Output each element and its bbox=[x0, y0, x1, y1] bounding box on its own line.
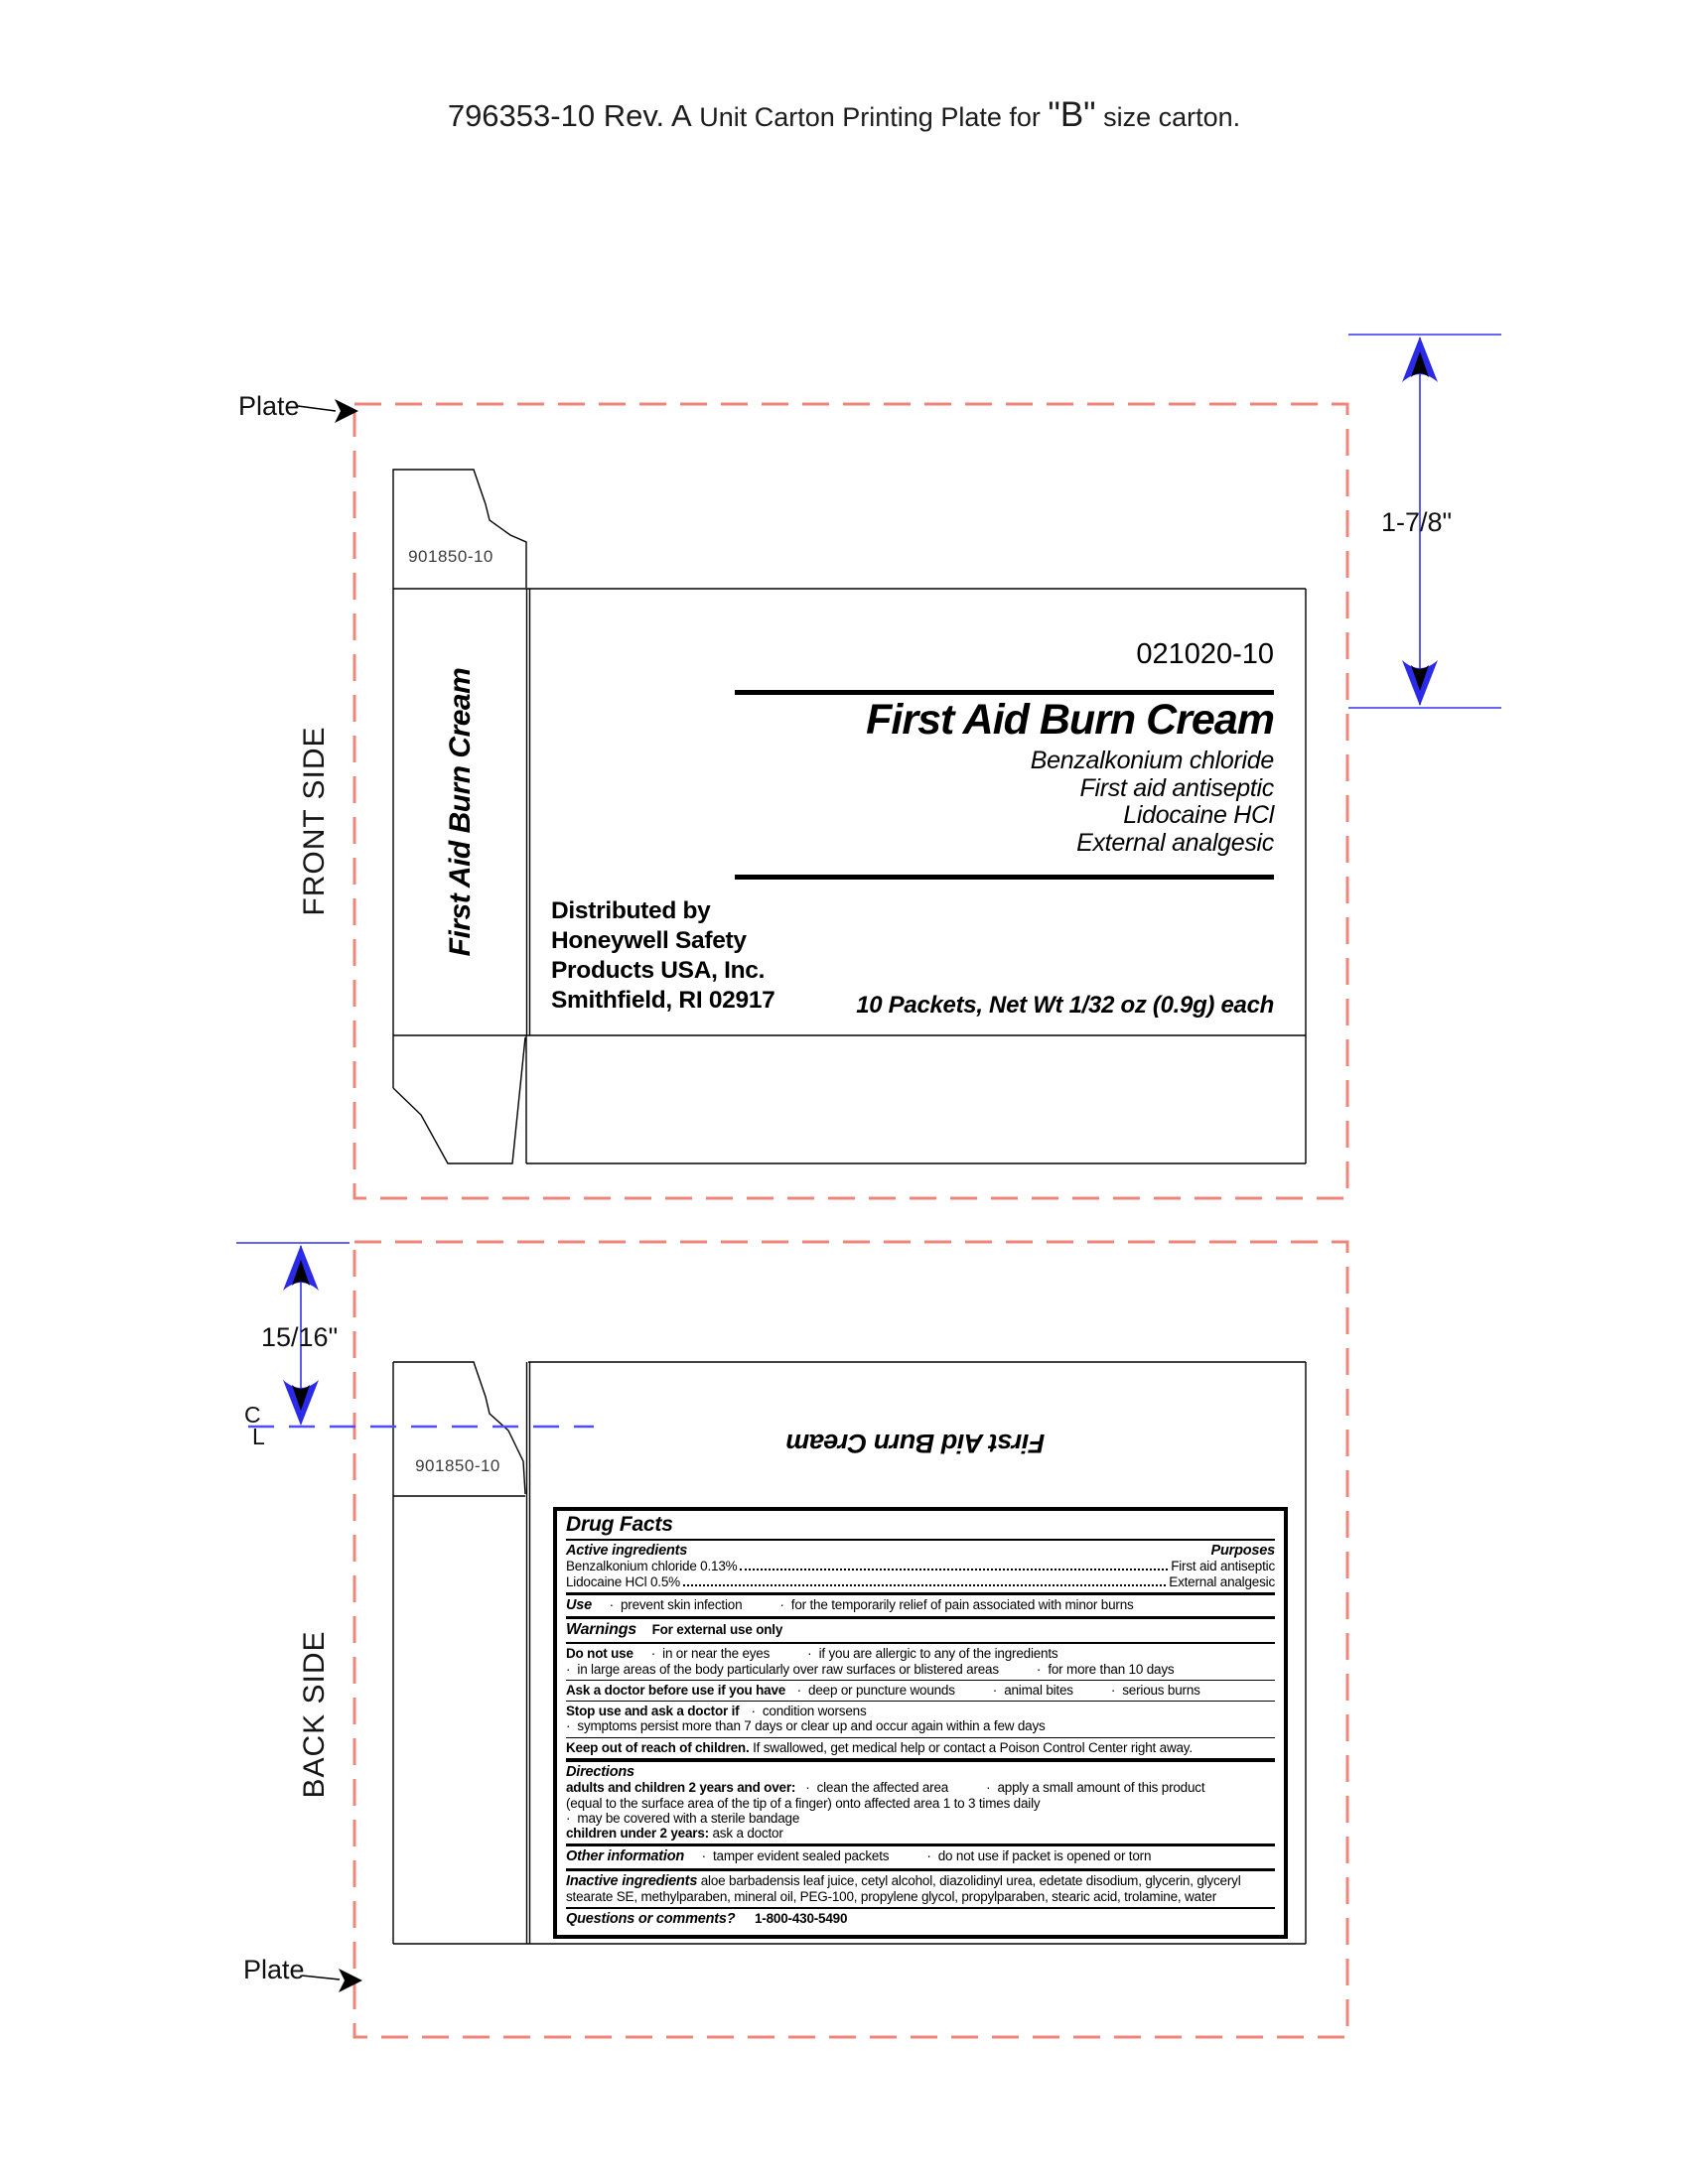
printing-plate-drawing: 796353-10 Rev. A Unit Carton Printing Pl… bbox=[0, 0, 1688, 2184]
page-title-middle: Unit Carton Printing Plate for bbox=[692, 102, 1049, 132]
do-not-use-label: Do not use bbox=[566, 1646, 633, 1661]
keep-out-section: Keep out of reach of children. If swallo… bbox=[566, 1738, 1275, 1762]
keep-out-text: If swallowed, get medical help or contac… bbox=[750, 1740, 1193, 1755]
questions-section: Questions or comments? 1-800-430-5490 bbox=[566, 1909, 1275, 1930]
warnings-sub-label: For external use only bbox=[652, 1622, 783, 1637]
active2-purpose: External analgesic bbox=[1169, 1574, 1275, 1589]
front-sub-lines: Benzalkonium chlorideFirst aid antisepti… bbox=[596, 748, 1274, 857]
plate-label-top: Plate bbox=[238, 391, 300, 422]
active-ingredient-row: Lidocaine HCl 0.5% External analgesic bbox=[566, 1574, 1275, 1589]
directions-line3: · may be covered with a sterile bandage bbox=[566, 1811, 1275, 1826]
directions-children-text: ask a doctor bbox=[709, 1826, 783, 1841]
directions-line2: (equal to the surface area of the tip of… bbox=[566, 1796, 1275, 1811]
directions-adults-label: adults and children 2 years and over: bbox=[566, 1780, 795, 1795]
leader-dots bbox=[740, 1569, 1168, 1570]
stop-use-items-1: · condition worsens bbox=[751, 1704, 866, 1718]
page-title-code: 796353-10 Rev. A bbox=[448, 98, 692, 133]
questions-phone: 1-800-430-5490 bbox=[755, 1911, 847, 1926]
warnings-header: Warnings For external use only bbox=[566, 1619, 1275, 1644]
front-rule-top bbox=[735, 690, 1274, 695]
active-ingredients-label: Active ingredients bbox=[566, 1543, 687, 1559]
directions-children-label: children under 2 years: bbox=[566, 1826, 709, 1841]
questions-label: Questions or comments? bbox=[566, 1911, 735, 1927]
stop-use-items-2: · symptoms persist more than 7 days or c… bbox=[566, 1718, 1046, 1733]
keep-out-label: Keep out of reach of children. bbox=[566, 1740, 750, 1755]
plate-label-bottom: Plate bbox=[243, 1955, 305, 1985]
page-title-tail: size carton. bbox=[1096, 102, 1241, 132]
other-information-label: Other information bbox=[566, 1848, 684, 1864]
other-information-section: Other information · tamper evident seale… bbox=[566, 1846, 1275, 1870]
front-flap-code: 901850-10 bbox=[390, 547, 511, 567]
back-panel-title: First Aid Burn Cream bbox=[717, 1427, 1114, 1460]
front-net-weight: 10 Packets, Net Wt 1/32 oz (0.9g) each bbox=[695, 992, 1274, 1020]
do-not-use-items-2: · in large areas of the body particularl… bbox=[566, 1662, 1174, 1677]
dim-back-offset-label: 15/16" bbox=[261, 1322, 338, 1353]
drug-facts-header: Drug Facts bbox=[566, 1511, 1275, 1541]
page-title: 796353-10 Rev. A Unit Carton Printing Pl… bbox=[0, 95, 1688, 135]
plate-pointer-top bbox=[298, 399, 358, 423]
front-part-number: 021020-10 bbox=[993, 638, 1274, 671]
stop-use-section: Stop use and ask a doctor if· condition … bbox=[566, 1702, 1275, 1738]
do-not-use-section: Do not use· in or near the eyes· if you … bbox=[566, 1644, 1275, 1681]
use-section: Use · prevent skin infection· for the te… bbox=[566, 1595, 1275, 1619]
ask-doctor-label: Ask a doctor before use if you have bbox=[566, 1683, 785, 1698]
stop-use-label: Stop use and ask a doctor if bbox=[566, 1704, 739, 1718]
front-product-name: First Aid Burn Cream bbox=[596, 696, 1274, 745]
directions-section: Directions adults and children 2 years a… bbox=[566, 1762, 1275, 1846]
active-ingredient-row: Benzalkonium chloride 0.13% First aid an… bbox=[566, 1559, 1275, 1573]
back-flap-code: 901850-10 bbox=[397, 1456, 518, 1476]
back-side-label: BACK SIDE bbox=[295, 1566, 335, 1863]
leader-dots bbox=[683, 1584, 1166, 1586]
use-items: · prevent skin infection· for the tempor… bbox=[610, 1597, 1134, 1612]
warnings-label: Warnings bbox=[566, 1621, 636, 1638]
purposes-label: Purposes bbox=[1211, 1543, 1275, 1559]
other-information-items: · tamper evident sealed packets· do not … bbox=[702, 1848, 1152, 1863]
directions-label: Directions bbox=[566, 1764, 1275, 1780]
ask-doctor-section: Ask a doctor before use if you have · de… bbox=[566, 1681, 1275, 1702]
active-ingredients-section: Active ingredients Purposes Benzalkonium… bbox=[566, 1541, 1275, 1595]
drug-facts-box: Drug Facts Active ingredients Purposes B… bbox=[553, 1507, 1288, 1939]
front-rule-bottom bbox=[735, 875, 1274, 880]
active2-name: Lidocaine HCl 0.5% bbox=[566, 1574, 680, 1589]
front-side-panel-text: First Aid Burn Cream bbox=[441, 638, 481, 986]
page-title-size-letter: "B" bbox=[1048, 95, 1095, 134]
inactive-ingredients-label: Inactive ingredients bbox=[566, 1873, 697, 1889]
front-side-label: FRONT SIDE bbox=[295, 672, 335, 970]
dim-front-height-label: 1-7/8" bbox=[1381, 507, 1452, 538]
ask-doctor-items: · deep or puncture wounds· animal bites·… bbox=[797, 1683, 1200, 1698]
inactive-ingredients-section: Inactive ingredients aloe barbadensis le… bbox=[566, 1871, 1275, 1910]
centerline-symbol-l: L bbox=[252, 1426, 265, 1448]
do-not-use-items-1: · in or near the eyes· if you are allerg… bbox=[651, 1646, 1058, 1661]
active1-name: Benzalkonium chloride 0.13% bbox=[566, 1559, 737, 1573]
active1-purpose: First aid antiseptic bbox=[1171, 1559, 1275, 1573]
use-label: Use bbox=[566, 1597, 592, 1613]
directions-adults-items: · clean the affected area· apply a small… bbox=[805, 1780, 1204, 1795]
